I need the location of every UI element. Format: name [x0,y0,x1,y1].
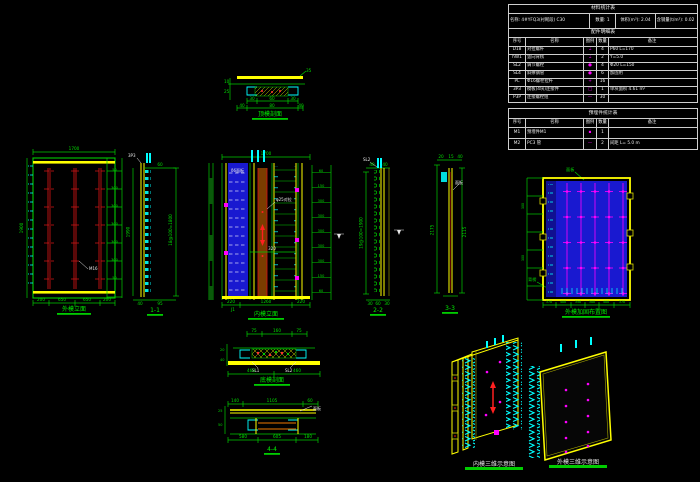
dim-text: 300 [318,229,325,233]
table-title: 预埋件统计表 [509,109,697,118]
cell-no: M1 [509,128,525,138]
cell-note: Φ20 L=150 [608,63,695,70]
left-elevation-drawing: 1700 1900 50 300 300 300 300 300 50 [19,146,122,315]
dim-left [434,165,440,293]
cell-name: 对拉螺杆 [525,47,583,54]
cell-legend: ⌶ [583,55,596,62]
cell-note: 间距 L= 5.0 m [608,139,695,149]
cell-legend: ▪ [583,128,596,138]
bottom-section-drawing: 75 160 75 20 40 SL1 SL2 460 460 底模剖面 [220,328,320,386]
dim-text: 60 [319,169,323,173]
edge-ticks [28,165,33,291]
leader-text: φ25对拉 [276,196,292,202]
leader-text: δ6面板 [231,167,244,173]
iso-inner-form-drawing: 内模三维示意图 [452,335,523,470]
drawing-title: 1-1 [150,307,160,314]
base-plate [228,361,320,365]
dim-text: 30 [384,301,390,306]
info-cell: 数量: 1 [589,14,615,28]
part-note: 3P3 [128,153,136,158]
cell-note [608,95,695,102]
cell-no: 3P3 [509,87,525,94]
dim-text: 60 [375,301,381,306]
title-underline [370,314,386,316]
dim-text: 10 [224,79,230,84]
dim-text: 300 [318,259,325,263]
col-header: 数量 [596,119,608,127]
top-rail [33,161,115,164]
dim-left [363,172,369,294]
cad-canvas: 30 60 30 40 80 40 10 25 35 顶模剖面 1700 190… [0,0,700,482]
dim-text: 40 [382,162,388,167]
cell-legend: + [583,79,596,86]
dim-text: 300 [111,222,118,226]
header-row: 序号 名称 图例 数量 备注 [509,118,697,127]
cell-no: SL2 [509,63,525,70]
leader-text: 背楞 [528,276,536,283]
dim-text: 150 [318,274,325,278]
top-section-drawing: 30 60 30 40 80 40 10 25 35 顶模剖面 [224,68,312,120]
dim-text: 370 [546,300,552,304]
table-row: PL Φ16螺栓拉杆 + 16 [509,78,697,86]
top-panel-plate [237,76,303,79]
dim-text: 1700 [261,151,272,156]
info-cell: 名称: 4#YFQ3(衬砌段) C30 [509,14,589,28]
panel-face [540,352,611,460]
cell-name: 连接螺栓组 [525,95,583,102]
dim-text: 60 [319,289,323,293]
dim-text: 300 [521,203,525,209]
parts-subtitle: 配件明细表 [509,29,697,37]
table-row: M2 PC3 管 — 2 间距 L= 5.0 m [509,138,697,149]
cell-name: 模板(4块)连接件 [525,87,583,94]
corner-note: J1 [230,307,235,312]
rebar-ticks [70,170,80,290]
title-underline [252,118,288,120]
anchor-block [441,172,447,182]
section-2-2-drawing: 19@100=1900 SL2 40 40 30 60 30 2-2 [359,157,391,316]
cell-no: D18 [509,47,525,54]
dim-text: 30 [249,96,255,101]
cell-legend: — [583,139,596,149]
dim-text: 200 [103,297,111,302]
tie-rod-grid [559,183,629,296]
dim-text: 300 [521,255,525,261]
zigzag-hatch-right [506,342,522,430]
dim-text: 40 [220,358,224,362]
col-header: 图例 [583,38,596,46]
dim-text: 300 [111,186,118,190]
rebar-ticks [95,170,105,290]
cell-note: P60 L=170 [608,47,695,54]
cell-no: hW1 [509,55,525,62]
dim-text: 50 [112,276,116,280]
title-underline [248,318,284,320]
dim-text: 40 [137,301,143,306]
table-row: hW1 竖向背楞 ⌶ 2 Y=5.0 [509,54,697,62]
dim-text: 19@100=1900 [359,217,364,249]
cell-no: P3P [509,95,525,102]
dim-text: 300 [589,300,595,304]
drawing-title: 底模剖面 [260,376,284,384]
cell-qty: 4 [596,63,608,70]
bottom-rail [33,291,115,294]
title-underline [254,384,290,386]
drawing-title: 4-4 [267,446,277,453]
title-underline [264,453,280,455]
col-header: 序号 [509,38,525,46]
cell-legend: ● [583,63,596,70]
cell-name: 竖向背楞 [525,55,583,62]
panel-ribs [229,166,247,295]
cell-legend: — [583,95,596,102]
dim-text: 460 [247,368,255,373]
title-underline [147,314,163,316]
rail-tabs [452,375,458,439]
cell-qty: 4 [596,47,608,54]
dim-text: 1260 [261,299,272,304]
bottom-ticks [558,287,626,295]
drawing-title: 外模三维示意图 [557,458,599,466]
dim-text: 580 [239,434,247,439]
dim-text: 370 [619,300,625,304]
leader-text: SL2 [285,368,293,373]
view-marker-b [394,230,404,235]
cell-qty: 6 [596,71,608,78]
channel-left [240,350,250,358]
leader-text: 面板 [566,166,575,173]
dim-text: 160 [273,328,281,333]
embed-table: 预埋件统计表 序号 名称 图例 数量 备注 M1 预埋件M1 ▪ 1 M2 PC… [508,108,698,150]
dim-text: 75 [251,328,257,333]
section-3-3-drawing: 20 15 40 2175 2115 面板 3-3 [430,154,468,314]
dim-text: 650 [58,297,66,302]
dim-text: 300 [111,204,118,208]
channel-right [288,87,298,95]
dim-text: 180 [304,434,312,439]
dim-text: 400 [603,300,609,304]
cell-qty: 30 [596,95,608,102]
drawing-title: 2-2 [373,307,383,314]
dim-text: 1105 [267,398,278,403]
dim-text: 2175 [430,224,435,235]
dim-text: 50 [112,168,116,172]
col-header: 序号 [509,119,525,127]
table-title: 材料统计表 [509,5,697,13]
table-row: 3P3 模板(4块)连接件 □ 1 单块面积 4.61 m² [509,86,697,94]
dim-text: 40 [298,103,304,108]
section-1-1-drawing: 1990 3P3 18@100=1800 60 40 95 1-1 [126,153,180,316]
dim-text: 20 [220,348,224,352]
leader-text: 面板 [313,405,321,411]
dim-text: 320 [268,246,276,251]
dim-text: 15 [448,154,454,159]
info-cell: 含钢量(t/m³): 0.02 [655,14,695,28]
dim-text: 50 [218,423,222,427]
dim-text: 60 [269,96,275,101]
cell-no: SL4 [509,71,525,78]
cell-no: M2 [509,139,525,149]
dim-text: 1900 [19,222,24,233]
brace-ladder [274,166,296,299]
dim-bottom [543,302,630,308]
dim-right [173,168,179,296]
leader-text: M16 [89,266,98,271]
cell-note [608,128,695,138]
drawing-title: 顶模剖面 [258,110,282,118]
cell-note: 单块面积 4.61 m² [608,87,695,94]
cell-name: Φ16螺栓拉杆 [525,79,583,86]
dim-text: 400 [560,300,566,304]
dim-text: 80 [269,103,275,108]
dim-text: 95 [157,301,163,306]
cell-qty: 1 [596,87,608,94]
cell-name: 斜撑钢管 [525,71,583,78]
bolt-column [374,170,380,292]
cell-qty: 2 [596,139,608,149]
dim-text: 300 [318,244,325,248]
table-row: SL4 斜撑钢管 ● 6 加固用 [509,70,697,78]
dim-text: 150 [318,184,325,188]
edge-strip-ticks [548,184,553,294]
dim-text: 30 [367,301,373,306]
dim-text: 300 [318,199,325,203]
title-underline [442,312,458,314]
zigzag-hatch-left [462,358,475,448]
right-elevation-drawing: 面板 背楞 300 300 37 [521,166,633,318]
cell-note: 加固用 [608,71,695,78]
drawing-title: 内模三维示意图 [473,460,515,468]
dim-text: 40 [239,103,245,108]
cell-no: PL [509,79,525,86]
dim-text: 300 [318,214,325,218]
col-header: 图例 [583,119,596,127]
info-cell: 体积(m³): 2.04 [615,14,655,28]
cell-legend: □ [583,87,596,94]
drawing-title: 外模立面 [62,305,86,313]
cell-legend: ⌶ [583,47,596,54]
col-header: 名称 [525,38,583,46]
table-row: SL2 调节螺栓 ● 4 Φ20 L=150 [509,62,697,70]
dim-text: 1990 [126,226,131,237]
material-table: 材料统计表 名称: 4#YFQ3(衬砌段) C30 数量: 1 体积(m³): … [508,4,698,103]
dim-text: 220 [297,299,305,304]
dim-text: 1700 [69,146,80,151]
rebar-ticks [44,170,54,290]
view-marker-a [334,234,344,239]
cell-note: Y=5.0 [608,55,695,62]
leader-text: 35 [306,68,312,73]
middle-elevation-drawing: 1700 [209,150,331,320]
col-header: 名称 [525,119,583,127]
dim-text: 60 [157,162,163,167]
title-underline [57,313,91,315]
cell-name: PC3 管 [525,139,583,149]
section-4-4-drawing: 140 1105 60 25 50 面板 580 605 180 4-4 [218,398,321,455]
dim-text: 60 [307,398,313,403]
title-underline [562,316,610,318]
leader-text: 面板 [455,179,463,185]
dim-text: 140 [231,398,239,403]
dim-text: 605 [273,434,281,439]
dim-text: 75 [296,328,302,333]
cell-qty: 1 [596,128,608,138]
dim-text: 18@100=1800 [168,214,173,246]
cell-qty: 2 [596,55,608,62]
dim-text: 300 [111,258,118,262]
dim-text: 25 [224,89,230,94]
table-row: M1 预埋件M1 ▪ 1 [509,127,697,138]
dim-text: 40 [369,162,375,167]
dim-text: 200 [37,297,45,302]
left-scale-bar [209,163,213,300]
dim-text: 2115 [462,226,467,237]
cell-name: 调节螺栓 [525,63,583,70]
table-row: D18 对拉螺杆 ⌶ 4 P60 L=170 [509,46,697,54]
drawing-title: 3-3 [445,305,455,312]
zigzag-hatch-left [528,366,540,458]
dim-text: 300 [111,240,118,244]
dim-text: 20 [438,154,444,159]
header-row: 序号 名称 图例 数量 备注 [509,37,697,46]
travel-arrow [490,381,496,414]
dim-text: 460 [293,368,301,373]
drawing-title: 外模加固布置图 [565,308,607,316]
dim-text: 350 [575,300,581,304]
dim-text: 40 [457,154,463,159]
hardware-column [145,166,151,292]
drawing-title: 内模立面 [254,310,278,318]
col-header: 数量 [596,38,608,46]
dim-text: 25 [218,409,222,413]
cell-legend: ● [583,71,596,78]
table-row: P3P 连接螺栓组 — 30 [509,94,697,102]
dim-text: 650 [83,297,91,302]
iso-outer-form-drawing: 外模三维示意图 [528,337,611,468]
tie-plate [494,430,499,435]
cell-qty: 16 [596,79,608,86]
col-header: 备注 [608,38,695,46]
dim-text: 30 [290,96,296,101]
cell-name: 预埋件M1 [525,128,583,138]
col-header: 备注 [608,119,695,127]
dim-text: 220 [227,299,235,304]
channel-right [296,350,306,358]
cell-note [608,79,695,86]
